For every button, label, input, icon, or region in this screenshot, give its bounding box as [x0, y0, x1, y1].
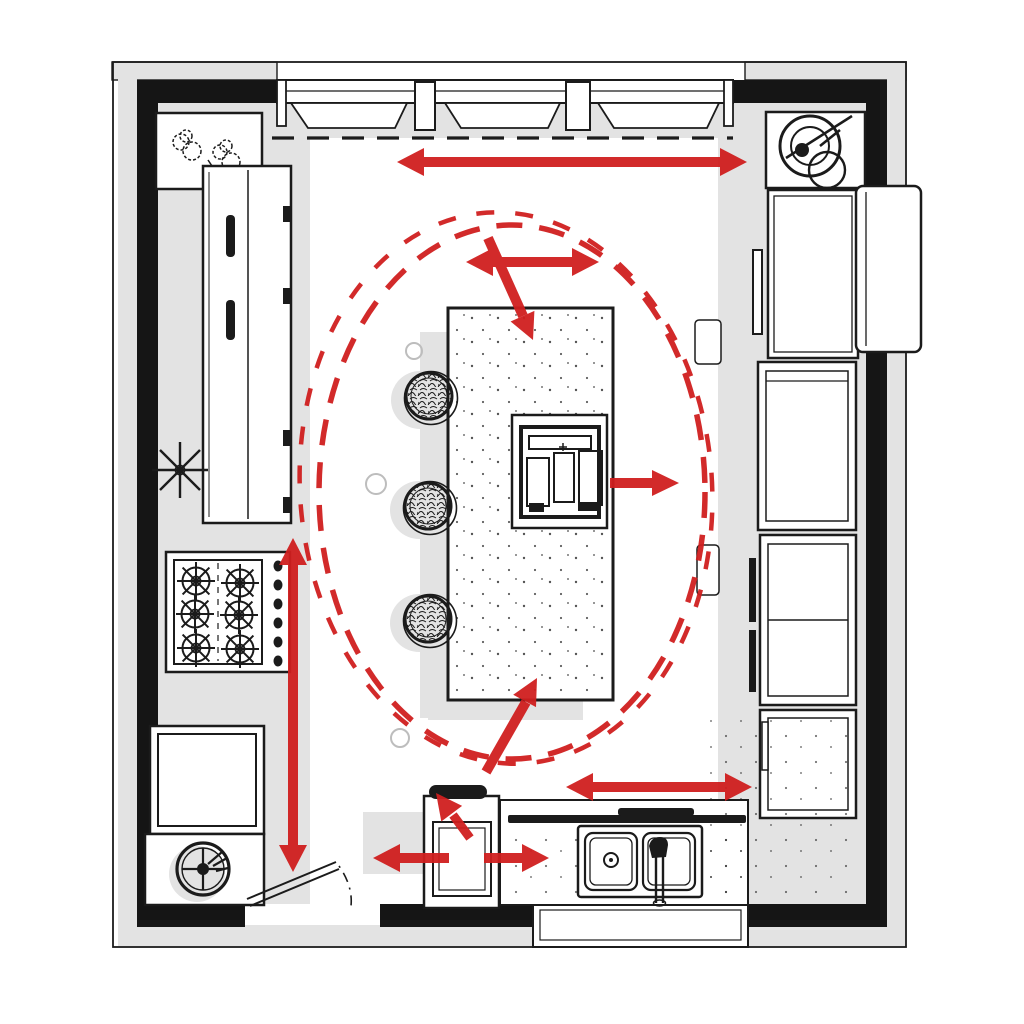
sketch-ghost-circle — [366, 474, 386, 494]
top-aisle-double-arrow — [397, 148, 747, 176]
floorplan-drawing — [0, 0, 1024, 1024]
prep-cabinet — [424, 785, 499, 908]
wall-bottom-right — [748, 904, 887, 927]
refrigerator — [753, 186, 921, 358]
wall-bottom-left — [137, 904, 245, 927]
turntable-wheel-icon — [177, 843, 229, 895]
arrow-island-to-right — [610, 470, 679, 496]
outer-band-bottom-right — [748, 925, 906, 946]
outer-band-bottom-left — [118, 925, 533, 946]
island-grill-cooktop — [512, 415, 607, 528]
faucet-icon — [649, 837, 668, 858]
island-top-double-arrow — [466, 248, 599, 276]
outer-band-left — [118, 64, 137, 945]
island-stool — [405, 372, 458, 425]
burner-icon — [220, 596, 258, 634]
kitchen-floorplan-canvas — [0, 0, 1024, 1024]
storage-pull — [749, 558, 756, 622]
wall-top-right — [733, 80, 887, 103]
window-sill — [291, 103, 407, 128]
burner-icon — [176, 595, 214, 633]
storage-pull — [749, 630, 756, 692]
outer-cap-top-right — [745, 62, 906, 80]
tall-storage-unit — [749, 535, 856, 705]
bottom-fixture-run — [424, 785, 748, 908]
wall-oven-stack — [758, 362, 856, 530]
island-shadow-bottom — [428, 700, 583, 720]
tall-pantry-cabinet — [203, 166, 292, 523]
window-mullion — [566, 82, 590, 130]
window-sill — [445, 103, 560, 128]
cabinet-handle — [226, 215, 235, 257]
cabinet-handle — [226, 300, 235, 340]
burner-icon — [177, 629, 215, 667]
sketch-ghost-circle — [391, 729, 409, 747]
window-mullion — [415, 82, 435, 130]
window-sill — [598, 103, 719, 128]
corner-mixer — [766, 112, 865, 188]
refrigerator-handle — [753, 250, 762, 334]
island-stool — [404, 595, 457, 648]
window-bay — [533, 903, 748, 947]
sketch-ghost-circle — [406, 343, 422, 359]
island-stool — [404, 482, 457, 535]
window-jamb — [277, 80, 286, 126]
double-basin-sink — [578, 826, 702, 906]
counter-light-icon — [152, 442, 208, 498]
corner-turntable-cabinet — [145, 834, 264, 905]
corner-counter-speckle — [705, 715, 855, 900]
burner-icon — [177, 562, 215, 600]
counter-item — [695, 320, 721, 364]
burner-icon — [221, 630, 259, 668]
range-cooktop — [166, 552, 290, 672]
counter-fitting — [618, 808, 694, 816]
drawer-base-cabinet — [150, 726, 264, 834]
window-jamb — [724, 80, 733, 126]
